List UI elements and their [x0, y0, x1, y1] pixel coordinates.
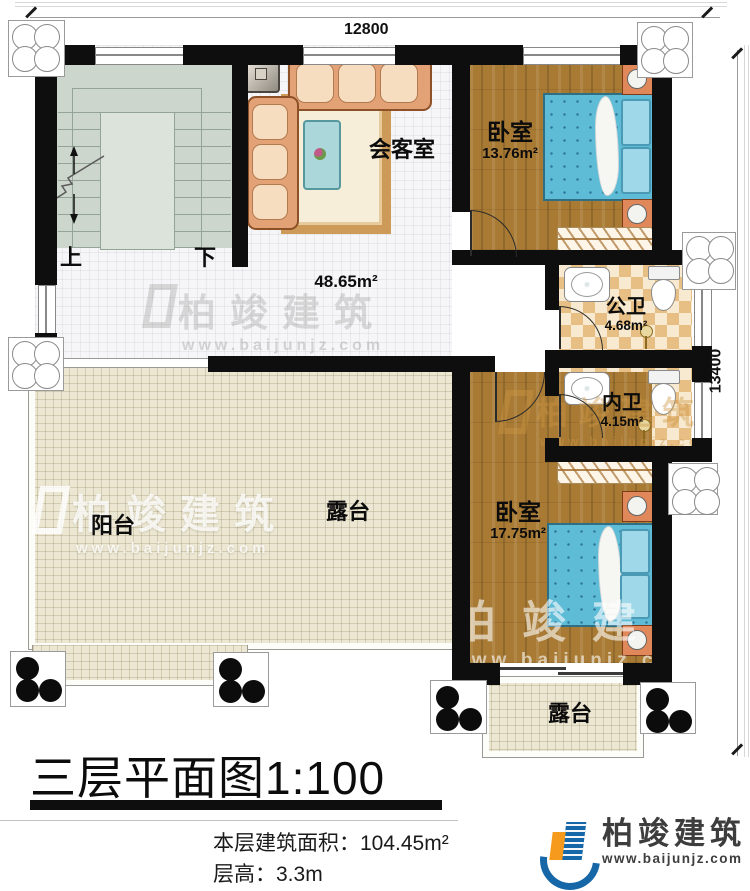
wall-segment	[545, 350, 712, 368]
column-marker-filled	[430, 680, 487, 734]
window	[303, 47, 397, 65]
sofa-cushion	[252, 104, 288, 140]
door-leaf	[559, 306, 561, 349]
brand-name: 柏竣建筑	[602, 818, 746, 851]
window	[95, 47, 185, 65]
label-terrace-small: 露台	[548, 702, 592, 727]
brand-website: www.baijunjz.com	[602, 851, 746, 866]
floor-plan-page: 12800 13400	[0, 0, 750, 891]
column-marker	[8, 20, 65, 77]
floor-drain-stem	[645, 336, 647, 349]
column-marker	[637, 22, 693, 78]
stair-treads-right	[173, 112, 231, 248]
label-bedroom-top: 卧室 13.76m²	[482, 120, 538, 163]
column-marker	[682, 232, 736, 290]
floor-drain-stem	[643, 430, 645, 443]
pillow	[620, 529, 650, 574]
wall-segment	[692, 438, 712, 462]
floor-height-text: 层高：3.3m	[213, 858, 323, 888]
pillow	[621, 99, 651, 146]
column-marker-filled	[10, 651, 66, 707]
wall-segment	[545, 265, 559, 310]
sliding-door	[558, 672, 623, 675]
window	[694, 282, 712, 348]
nightstand	[622, 625, 653, 656]
coffee-table	[303, 120, 341, 190]
wall-segment	[35, 45, 57, 285]
eave-line	[15, 2, 727, 3]
door-leaf	[470, 210, 472, 256]
floor-area-text: 本层建筑面积：104.45m²	[213, 827, 449, 857]
toilet-public-bath	[648, 266, 678, 312]
divider-line	[0, 820, 458, 821]
plan-title: 三层平面图1:100	[30, 742, 385, 808]
dimension-right-value: 13400	[707, 349, 725, 394]
eave-line	[744, 45, 745, 757]
terrace-main-floor	[28, 358, 462, 650]
label-bedroom-bottom: 卧室 17.75m²	[490, 500, 546, 543]
toilet-private-bath	[648, 370, 678, 416]
wall-segment	[208, 356, 495, 372]
wall-segment	[452, 372, 470, 685]
window	[38, 285, 56, 335]
label-hall-area: 48.65m²	[314, 272, 377, 291]
label-stair-down: 下	[194, 246, 216, 271]
wall-segment	[232, 55, 248, 267]
door-leaf	[495, 372, 497, 421]
label-terrace-main: 露台	[326, 500, 370, 525]
column-marker	[8, 337, 64, 391]
brand-logo-text: 柏竣建筑 www.baijunjz.com	[602, 818, 746, 866]
door-leaf	[559, 394, 561, 437]
brand-logo: 柏竣建筑 www.baijunjz.com	[540, 818, 746, 884]
label-meeting-room: 会客室	[369, 138, 435, 163]
column-marker	[668, 463, 718, 515]
sliding-door	[500, 667, 566, 670]
wall-segment	[545, 368, 559, 396]
label-balcony: 阳台	[91, 514, 135, 539]
nightstand	[622, 491, 653, 522]
sofa-cushion	[252, 144, 288, 180]
window	[523, 47, 622, 65]
title-underline	[30, 800, 442, 810]
nightstand	[622, 199, 653, 230]
wall-segment	[452, 55, 470, 212]
sink-public-bath	[564, 267, 610, 302]
dimension-line-top	[30, 17, 720, 18]
sofa-cushion	[380, 63, 418, 103]
pillow	[621, 147, 651, 194]
eave-line	[748, 45, 749, 757]
sofa-cushion	[296, 63, 334, 103]
pillow	[620, 574, 650, 619]
label-private-bath: 内卫 4.15m²	[601, 392, 644, 430]
eave-line	[15, 6, 727, 7]
wall-segment	[545, 446, 712, 462]
brand-logo-icon	[540, 818, 602, 884]
sofa-cushion	[338, 63, 376, 103]
label-stair-up: 上	[60, 246, 82, 271]
label-public-bath: 公卫 4.68m²	[605, 296, 648, 334]
dimension-top-value: 12800	[344, 21, 389, 39]
column-marker-filled	[640, 682, 696, 734]
sofa-cushion	[252, 184, 288, 220]
column-marker-filled	[213, 652, 269, 707]
dimension-line-right	[737, 50, 738, 756]
